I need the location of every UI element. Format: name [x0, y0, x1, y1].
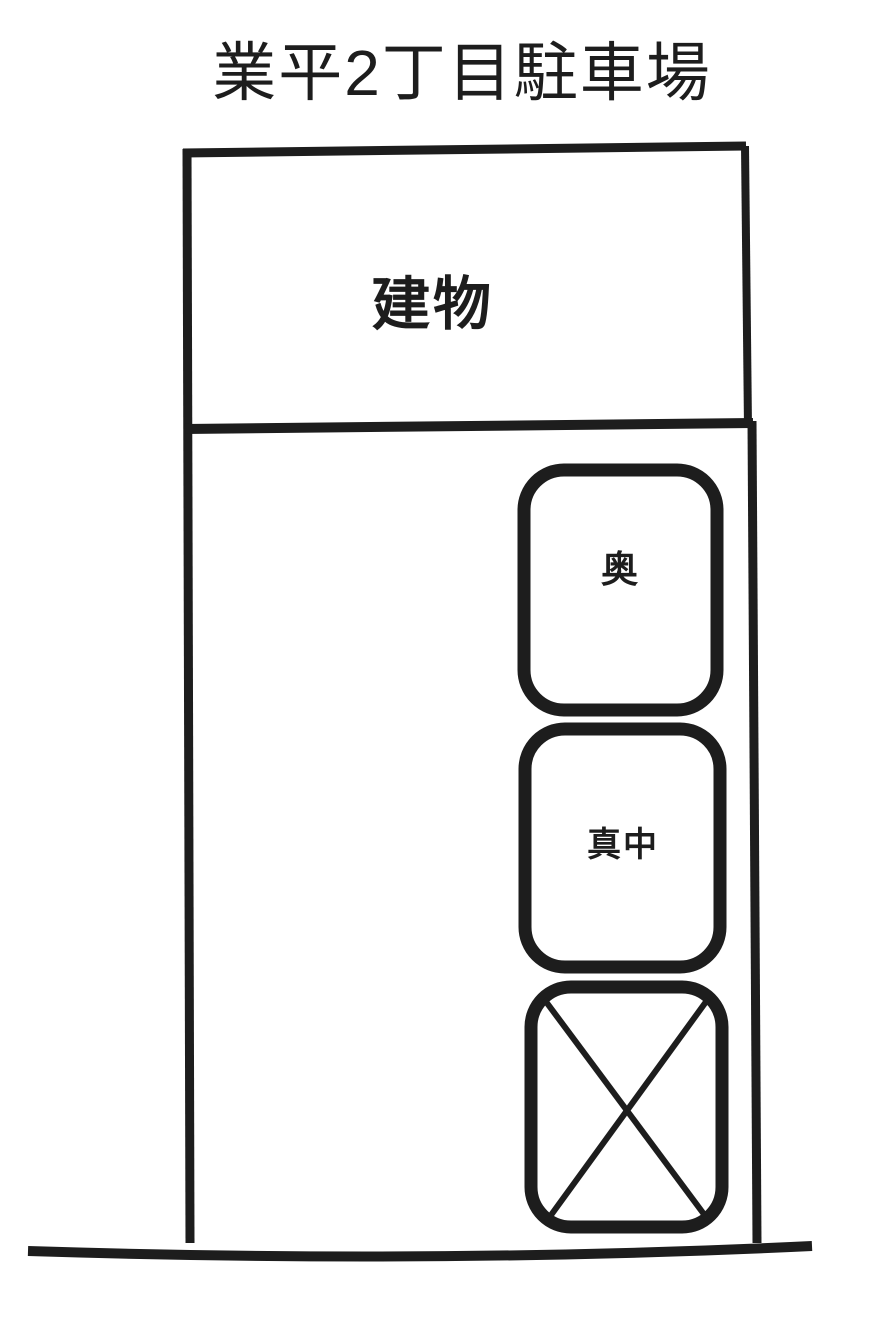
building-divider-line — [185, 423, 753, 429]
parking-lot-diagram: 業平2丁目駐車場 建物 奥 真中 — [0, 0, 887, 1342]
spot-label-mannaka: 真中 — [587, 826, 659, 864]
site-boundary-top — [183, 146, 746, 153]
building-right-edge — [745, 146, 748, 428]
site-boundary-left — [187, 149, 190, 1243]
building-label: 建物 — [372, 272, 494, 337]
site-boundary-right — [752, 421, 757, 1243]
parking-diagram-page: 業平2丁目駐車場 建物 奥 真中 — [0, 0, 887, 1342]
diagram-title: 業平2丁目駐車場 — [212, 37, 712, 109]
spot-label-oku: 奥 — [601, 549, 639, 590]
diagram-labels: 業平2丁目駐車場 建物 奥 真中 — [212, 37, 712, 864]
parking-spot-oku-outline — [524, 470, 717, 710]
road-line — [28, 1246, 812, 1256]
